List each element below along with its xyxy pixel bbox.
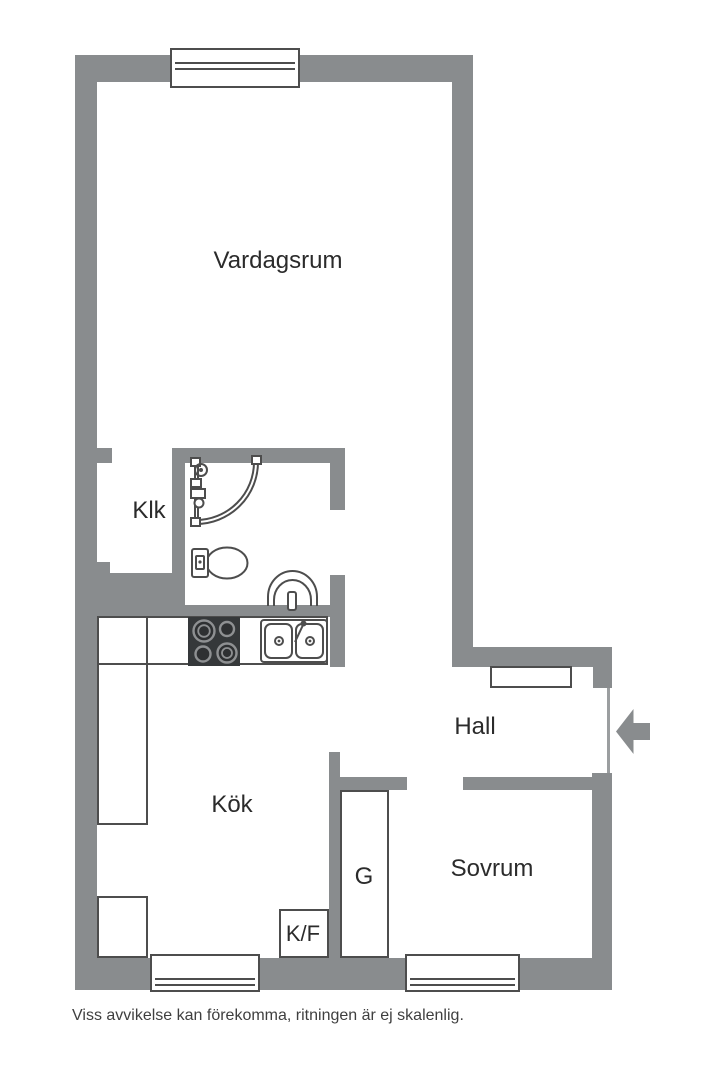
toilet-icon (192, 548, 248, 579)
room-label-sovrum: Sovrum (451, 857, 534, 881)
stove-icon (188, 617, 240, 666)
room-label-vardagsrum: Vardagsrum (214, 249, 343, 273)
disclaimer-text: Viss avvikelse kan förekomma, ritningen … (72, 1006, 464, 1027)
room-label-garderob: G (355, 865, 374, 889)
room-label-kyl-frys: K/F (286, 923, 320, 945)
entrance-arrow-icon (616, 709, 650, 754)
room-label-kok: Kök (211, 793, 252, 817)
fixtures-layer (0, 0, 720, 1080)
shower-icon (191, 456, 261, 526)
double-sink-icon (261, 620, 327, 662)
room-label-klk: Klk (132, 499, 165, 523)
room-label-hall: Hall (454, 715, 495, 739)
washbasin-icon (268, 571, 317, 610)
floor-plan: Vardagsrum Klk Kök Hall G K/F Sovrum Vis… (0, 0, 720, 1080)
